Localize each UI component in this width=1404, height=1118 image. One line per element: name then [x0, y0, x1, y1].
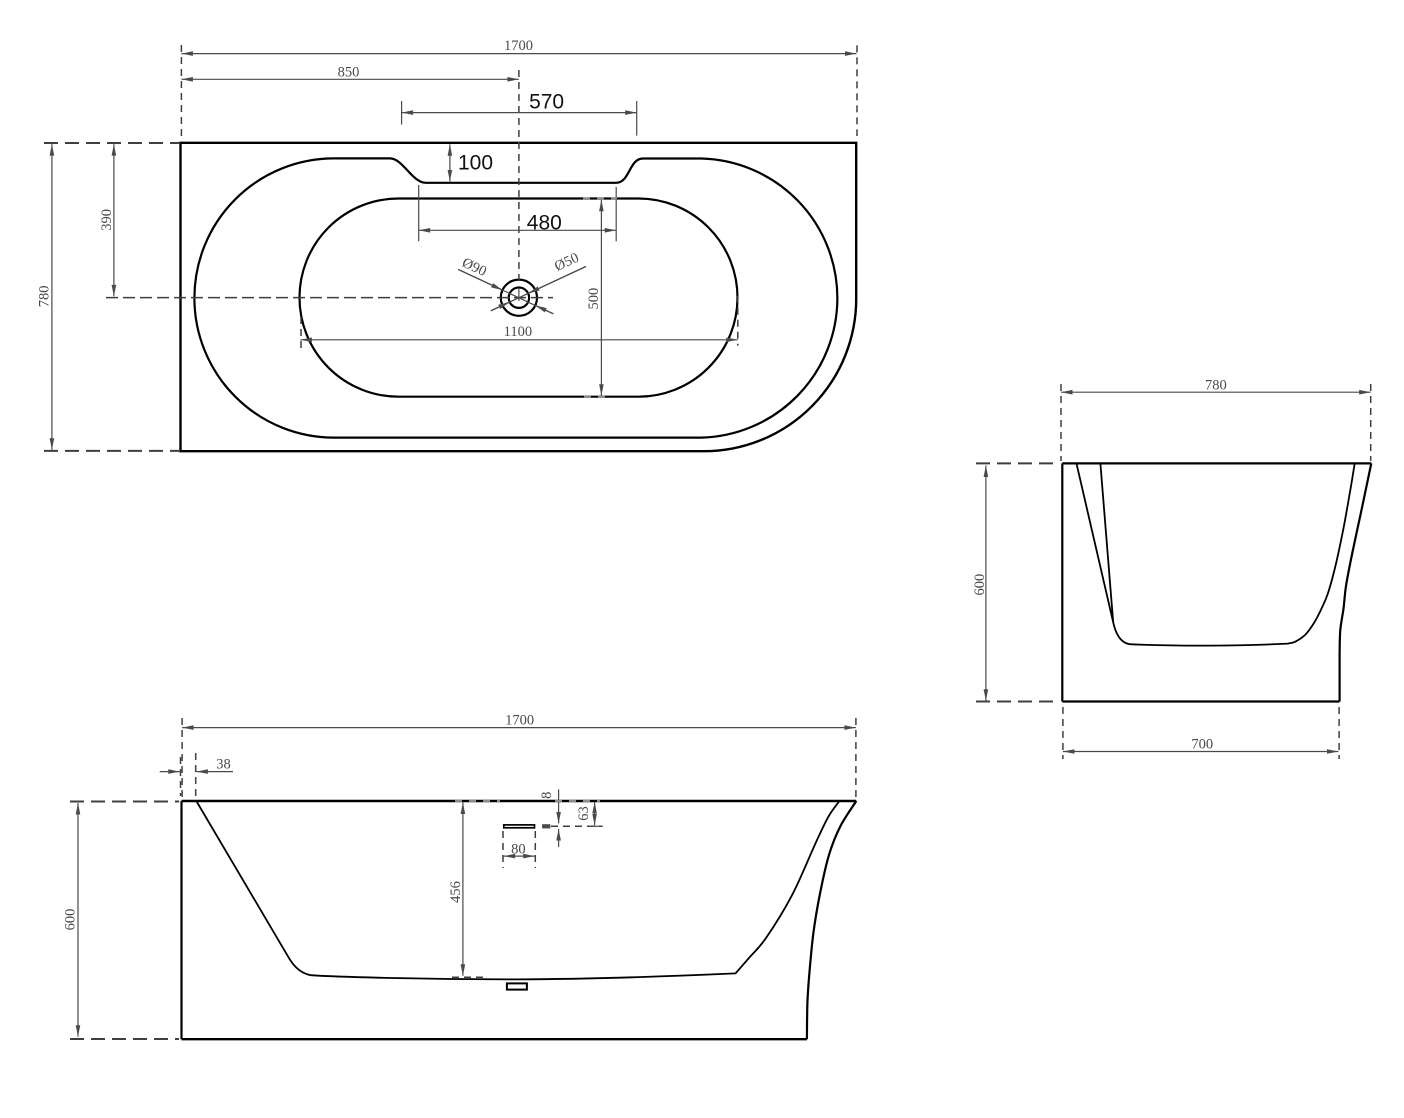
svg-text:63: 63: [576, 806, 592, 821]
svg-text:780: 780: [36, 286, 52, 308]
svg-text:1700: 1700: [504, 38, 533, 54]
svg-text:700: 700: [1191, 737, 1213, 753]
svg-text:500: 500: [586, 288, 602, 310]
svg-text:390: 390: [99, 209, 115, 231]
svg-text:480: 480: [527, 212, 562, 235]
svg-text:600: 600: [972, 574, 988, 596]
svg-text:100: 100: [458, 152, 493, 175]
svg-text:850: 850: [338, 64, 360, 80]
svg-text:Ø90: Ø90: [459, 255, 488, 280]
svg-text:456: 456: [448, 881, 464, 903]
svg-text:780: 780: [1205, 377, 1227, 393]
svg-text:80: 80: [511, 842, 526, 858]
svg-text:1700: 1700: [505, 713, 534, 729]
svg-text:570: 570: [529, 90, 564, 113]
svg-text:38: 38: [216, 757, 231, 773]
svg-text:8: 8: [539, 792, 555, 799]
svg-text:600: 600: [62, 909, 78, 931]
svg-text:1100: 1100: [504, 324, 532, 340]
